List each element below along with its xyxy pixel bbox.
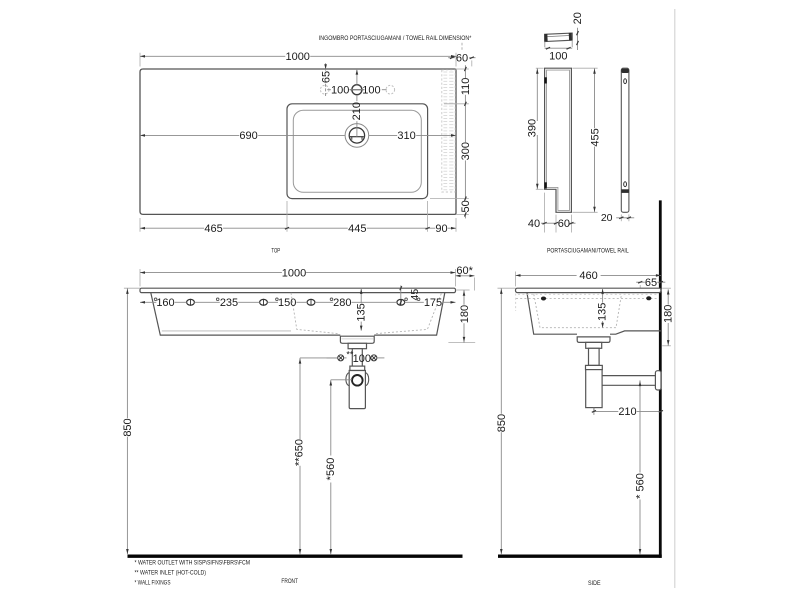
svg-text:90: 90 — [435, 223, 447, 235]
svg-text:150: 150 — [278, 297, 296, 309]
svg-text:**650: **650 — [294, 439, 306, 466]
svg-text:* WALL FIXINGS: * WALL FIXINGS — [135, 580, 171, 587]
svg-text:FRONT: FRONT — [281, 578, 298, 585]
svg-text:180: 180 — [459, 305, 471, 323]
svg-text:280: 280 — [333, 297, 351, 309]
svg-text:110: 110 — [460, 78, 472, 96]
svg-text:60: 60 — [558, 218, 570, 230]
svg-text:50: 50 — [460, 200, 472, 212]
svg-text:180: 180 — [663, 305, 675, 323]
svg-text:20: 20 — [601, 212, 613, 224]
svg-text:** WATER INLET (HOT-COLD): ** WATER INLET (HOT-COLD) — [135, 570, 207, 577]
svg-text:210: 210 — [618, 406, 636, 418]
svg-text:60: 60 — [456, 52, 468, 64]
svg-text:850: 850 — [496, 414, 508, 432]
svg-text:SIDE: SIDE — [588, 580, 601, 587]
svg-text:210: 210 — [351, 102, 363, 120]
svg-text:INGOMBRO PORTASCIUGAMANI / TOW: INGOMBRO PORTASCIUGAMANI / TOWEL RAIL DI… — [319, 35, 472, 42]
svg-text:390: 390 — [526, 119, 538, 137]
svg-text:445: 445 — [348, 223, 366, 235]
svg-text:1000: 1000 — [285, 51, 309, 63]
svg-text:460: 460 — [579, 270, 597, 282]
svg-text:* 560: * 560 — [635, 473, 647, 499]
svg-text:160: 160 — [156, 297, 174, 309]
svg-text:455: 455 — [590, 128, 602, 146]
svg-text:100: 100 — [549, 51, 567, 63]
svg-text:1000: 1000 — [282, 267, 306, 279]
svg-text:65: 65 — [321, 71, 333, 83]
svg-text:PORTASCIUGAMANI/TOWEL RAIL: PORTASCIUGAMANI/TOWEL RAIL — [547, 248, 629, 254]
svg-text:300: 300 — [460, 142, 472, 160]
svg-text:175: 175 — [424, 297, 442, 309]
svg-text:40: 40 — [528, 218, 540, 230]
svg-text:310: 310 — [397, 130, 415, 142]
svg-text:135: 135 — [597, 303, 609, 321]
svg-text:45: 45 — [409, 289, 421, 301]
svg-text:100: 100 — [353, 353, 371, 365]
svg-text:235: 235 — [220, 297, 238, 309]
svg-text:65: 65 — [645, 277, 657, 289]
svg-text:TOP: TOP — [271, 248, 280, 255]
svg-text:100: 100 — [362, 84, 380, 96]
svg-text:20: 20 — [572, 12, 584, 24]
svg-text:850: 850 — [122, 418, 134, 436]
svg-text:* WATER OUTLET WITH SISP\SIFNS: * WATER OUTLET WITH SISP\SIFNS\FBRS\FCM — [135, 560, 251, 567]
svg-text:*560: *560 — [325, 458, 337, 481]
svg-text:690: 690 — [239, 130, 257, 142]
svg-text:465: 465 — [204, 223, 222, 235]
svg-text:135: 135 — [356, 303, 368, 321]
svg-text:100: 100 — [331, 84, 349, 96]
